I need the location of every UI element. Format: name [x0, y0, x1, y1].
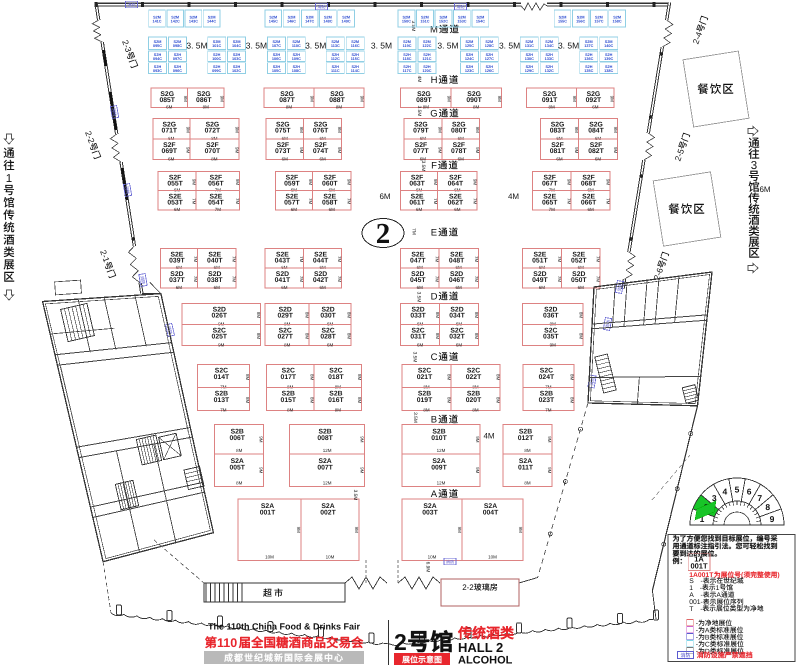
- svg-text:110C: 110C: [292, 44, 301, 48]
- svg-text:018T: 018T: [328, 374, 344, 381]
- svg-text:8M: 8M: [472, 408, 479, 413]
- svg-text:1: 1: [689, 585, 693, 592]
- svg-text:8M: 8M: [236, 481, 243, 486]
- svg-text:9M: 9M: [235, 147, 240, 154]
- svg-text:113C: 113C: [331, 44, 340, 48]
- svg-text:024T: 024T: [539, 374, 555, 381]
- svg-text:144C: 144C: [207, 19, 216, 23]
- svg-text:7M: 7M: [337, 276, 342, 283]
- svg-text:8M: 8M: [211, 157, 218, 162]
- svg-text:D: D: [431, 292, 439, 303]
- svg-text:10M: 10M: [488, 555, 497, 560]
- svg-text:121C: 121C: [422, 57, 431, 61]
- svg-text:124C: 124C: [465, 57, 474, 61]
- svg-text:086T: 086T: [196, 97, 212, 104]
- svg-text:3. 5M: 3. 5M: [371, 41, 392, 51]
- svg-text:142C: 142C: [171, 19, 180, 23]
- svg-text:6M: 6M: [417, 343, 424, 348]
- svg-text:9M: 9M: [613, 127, 618, 134]
- svg-text:7M: 7M: [411, 228, 417, 235]
- svg-text:128C: 128C: [485, 44, 494, 48]
- svg-text:070T: 070T: [205, 148, 221, 155]
- svg-text:6M: 6M: [291, 207, 298, 212]
- svg-text:140C: 140C: [604, 44, 613, 48]
- svg-text:3.5M: 3.5M: [416, 292, 422, 303]
- svg-text:3.5M: 3.5M: [420, 161, 426, 172]
- svg-text:061T: 061T: [409, 200, 425, 207]
- svg-text:034T: 034T: [449, 313, 465, 320]
- svg-text:122C: 122C: [422, 44, 431, 48]
- svg-text:7M: 7M: [596, 276, 601, 283]
- svg-text:6.9M: 6.9M: [425, 562, 431, 573]
- svg-text:8M: 8M: [496, 397, 501, 404]
- svg-text:9M: 9M: [475, 436, 480, 443]
- svg-text:016T: 016T: [328, 397, 344, 404]
- svg-text:2-2: 2-2: [462, 583, 474, 592]
- svg-text:-: -: [700, 606, 702, 613]
- svg-text:G: G: [430, 109, 438, 120]
- svg-text:-: -: [700, 585, 702, 592]
- svg-text:120C: 120C: [422, 69, 431, 73]
- svg-text:134C: 134C: [545, 44, 554, 48]
- svg-text:145C: 145C: [269, 19, 278, 23]
- svg-text:9: 9: [770, 514, 775, 524]
- svg-text:8M: 8M: [524, 481, 531, 486]
- svg-text:6M: 6M: [319, 157, 326, 162]
- svg-text:153C: 153C: [457, 19, 466, 23]
- svg-text:5: 5: [735, 485, 740, 495]
- svg-text:133C: 133C: [545, 57, 554, 61]
- svg-text:6M: 6M: [282, 157, 289, 162]
- svg-text:072T: 072T: [205, 128, 221, 135]
- svg-text:082T: 082T: [588, 148, 604, 155]
- svg-text:9M: 9M: [518, 527, 523, 534]
- svg-text:6M: 6M: [454, 207, 461, 212]
- svg-text:107C: 107C: [272, 44, 281, 48]
- svg-text:027T: 027T: [277, 334, 293, 341]
- svg-text:6M: 6M: [327, 343, 334, 348]
- svg-text:093C: 093C: [153, 69, 162, 73]
- svg-text:009T: 009T: [431, 465, 447, 472]
- svg-text:4M: 4M: [483, 432, 494, 441]
- svg-text:025T: 025T: [212, 334, 228, 341]
- svg-text:031T: 031T: [410, 334, 426, 341]
- svg-text:7M: 7M: [474, 256, 479, 263]
- svg-text:111C: 111C: [331, 69, 340, 73]
- svg-text:014T: 014T: [214, 374, 230, 381]
- svg-text:013T: 013T: [214, 397, 230, 404]
- svg-text:098C: 098C: [173, 44, 182, 48]
- svg-text:035T: 035T: [543, 334, 559, 341]
- svg-text:12M: 12M: [323, 481, 332, 486]
- svg-text:126C: 126C: [485, 69, 494, 73]
- svg-text:006T: 006T: [229, 435, 245, 442]
- svg-text:10M: 10M: [326, 555, 335, 560]
- svg-text:151C: 151C: [420, 19, 429, 23]
- svg-text:114C: 114C: [351, 69, 360, 73]
- svg-text:7M: 7M: [473, 198, 478, 205]
- svg-text:044T: 044T: [313, 258, 329, 265]
- svg-text:9M: 9M: [610, 96, 615, 103]
- svg-text:6M: 6M: [417, 285, 424, 290]
- svg-text:H: H: [431, 75, 439, 86]
- svg-text:001T: 001T: [690, 561, 708, 570]
- svg-text:8M: 8M: [474, 312, 479, 319]
- svg-text:6M: 6M: [578, 285, 585, 290]
- svg-text:138C: 138C: [604, 69, 613, 73]
- svg-text:3.5M: 3.5M: [416, 106, 422, 117]
- svg-text:8M: 8M: [496, 374, 501, 381]
- svg-text:M: M: [430, 25, 439, 36]
- svg-text:112C: 112C: [331, 57, 340, 61]
- svg-text:115C: 115C: [351, 57, 360, 61]
- svg-text:-: -: [696, 634, 698, 641]
- svg-text:141C: 141C: [152, 19, 161, 23]
- svg-text:3. 5M: 3. 5M: [558, 41, 579, 51]
- svg-text:12M: 12M: [437, 448, 446, 453]
- svg-text:B: B: [705, 634, 710, 641]
- svg-text:050T: 050T: [571, 277, 587, 284]
- svg-text:130C: 130C: [525, 57, 534, 61]
- svg-text:156C: 156C: [576, 19, 585, 23]
- svg-text:12M: 12M: [323, 448, 332, 453]
- svg-text:033T: 033T: [410, 313, 426, 320]
- svg-text:8M: 8M: [569, 374, 574, 381]
- svg-text:054T: 054T: [208, 200, 224, 207]
- svg-text:9M: 9M: [457, 527, 462, 534]
- svg-text:029T: 029T: [277, 313, 293, 320]
- svg-text:8: 8: [765, 502, 770, 512]
- svg-text:9M: 9M: [347, 179, 352, 186]
- svg-text:090T: 090T: [466, 97, 482, 104]
- svg-text:7M: 7M: [474, 276, 479, 283]
- svg-text:10M: 10M: [265, 555, 274, 560]
- svg-text:066T: 066T: [581, 200, 597, 207]
- svg-text:9M: 9M: [220, 96, 225, 103]
- svg-text:100C: 100C: [212, 57, 221, 61]
- svg-text:4M: 4M: [416, 76, 422, 83]
- svg-text:078T: 078T: [451, 148, 467, 155]
- svg-text:9M: 9M: [613, 147, 618, 154]
- svg-text:8M: 8M: [423, 408, 430, 413]
- svg-text:062T: 062T: [448, 200, 464, 207]
- svg-text:1: 1: [6, 173, 12, 185]
- svg-text:-: -: [696, 641, 698, 648]
- svg-text:074T: 074T: [313, 148, 329, 155]
- svg-text:6M: 6M: [176, 285, 183, 290]
- svg-text:030T: 030T: [320, 313, 336, 320]
- svg-text:9M: 9M: [547, 436, 552, 443]
- svg-text:106C: 106C: [272, 57, 281, 61]
- svg-text:9M: 9M: [337, 147, 342, 154]
- svg-text:6M: 6M: [168, 157, 175, 162]
- svg-text:043T: 043T: [275, 258, 291, 265]
- svg-text:017T: 017T: [281, 374, 297, 381]
- svg-text:8M: 8M: [203, 105, 210, 110]
- svg-text:10M: 10M: [428, 555, 437, 560]
- svg-text:A: A: [689, 592, 694, 599]
- svg-text:6M: 6M: [455, 285, 462, 290]
- svg-text:8M: 8M: [236, 448, 243, 453]
- svg-text:119C: 119C: [403, 44, 412, 48]
- svg-text:079T: 079T: [413, 128, 429, 135]
- svg-text:051T: 051T: [532, 258, 548, 265]
- svg-text:085T: 085T: [159, 97, 175, 104]
- svg-text:9M: 9M: [360, 96, 365, 103]
- svg-text:007T: 007T: [317, 465, 333, 472]
- svg-text:105C: 105C: [272, 69, 281, 73]
- svg-text:020T: 020T: [466, 397, 482, 404]
- svg-text:148C: 148C: [323, 19, 332, 23]
- svg-text:039T: 039T: [169, 258, 185, 265]
- svg-text:127C: 127C: [485, 57, 494, 61]
- svg-text:023T: 023T: [539, 397, 555, 404]
- svg-text:146C: 146C: [287, 19, 296, 23]
- svg-text:9M: 9M: [259, 467, 264, 474]
- svg-text:8M: 8M: [347, 333, 352, 340]
- svg-text:052T: 052T: [571, 258, 587, 265]
- svg-text:9M: 9M: [475, 467, 480, 474]
- svg-text:6: 6: [747, 487, 752, 497]
- svg-text:): ): [777, 572, 779, 579]
- svg-text:097C: 097C: [173, 57, 182, 61]
- svg-text:021T: 021T: [417, 374, 433, 381]
- svg-text:091T: 091T: [542, 97, 558, 104]
- svg-text:F: F: [431, 161, 438, 172]
- svg-text:094C: 094C: [153, 57, 162, 61]
- svg-text:6M: 6M: [456, 343, 463, 348]
- svg-text:022T: 022T: [466, 374, 482, 381]
- svg-text:028T: 028T: [320, 334, 336, 341]
- svg-text:125C: 125C: [465, 44, 474, 48]
- svg-text:041T: 041T: [275, 277, 291, 284]
- svg-text:3. 5M: 3. 5M: [186, 41, 207, 51]
- svg-text:040T: 040T: [207, 258, 223, 265]
- svg-text:8M: 8M: [256, 333, 261, 340]
- svg-text:9M: 9M: [296, 527, 301, 534]
- svg-text:8M: 8M: [256, 312, 261, 319]
- svg-text:7M: 7M: [232, 276, 237, 283]
- svg-text:095C: 095C: [153, 44, 162, 48]
- svg-text:002T: 002T: [320, 510, 336, 517]
- svg-text:065T: 065T: [542, 200, 558, 207]
- svg-text:7M: 7M: [596, 256, 601, 263]
- svg-text:154C: 154C: [476, 19, 485, 23]
- svg-text:118C: 118C: [403, 57, 412, 61]
- svg-text:7M: 7M: [235, 198, 240, 205]
- svg-text:102C: 102C: [232, 69, 241, 73]
- svg-text:011T: 011T: [518, 465, 534, 472]
- svg-text:9M: 9M: [235, 127, 240, 134]
- svg-text:6M: 6M: [166, 105, 173, 110]
- svg-text:143C: 143C: [189, 19, 198, 23]
- svg-text:9M: 9M: [337, 127, 342, 134]
- svg-text:129C: 129C: [525, 69, 534, 73]
- svg-text:087T: 087T: [279, 97, 295, 104]
- svg-text:005T: 005T: [229, 465, 245, 472]
- svg-text:004T: 004T: [483, 510, 499, 517]
- svg-text:045T: 045T: [410, 277, 426, 284]
- svg-text:6M: 6M: [595, 157, 602, 162]
- svg-text:-: -: [696, 620, 698, 627]
- svg-text:6M: 6M: [592, 105, 599, 110]
- svg-text:157C: 157C: [594, 19, 603, 23]
- svg-text:077T: 077T: [413, 148, 429, 155]
- svg-text:-: -: [701, 592, 703, 599]
- svg-text:The 110​th China Food & Drinks: The 110​th China Food & Drinks Fair: [208, 622, 361, 632]
- svg-text:9M: 9M: [235, 179, 240, 186]
- svg-text:015T: 015T: [281, 397, 297, 404]
- svg-text:099C: 099C: [212, 69, 221, 73]
- svg-text:HALL 2: HALL 2: [458, 640, 503, 655]
- svg-text:103C: 103C: [232, 57, 241, 61]
- svg-text:C: C: [431, 352, 439, 363]
- svg-text:081T: 081T: [550, 148, 566, 155]
- svg-text:8M: 8M: [474, 333, 479, 340]
- svg-text:6M: 6M: [539, 285, 546, 290]
- svg-text:3: 3: [751, 160, 757, 172]
- svg-text:089T: 089T: [416, 97, 432, 104]
- svg-text:8M: 8M: [569, 397, 574, 404]
- svg-text:7M: 7M: [549, 207, 556, 212]
- svg-text:8M: 8M: [473, 105, 480, 110]
- svg-text:8M: 8M: [357, 397, 362, 404]
- svg-text:7M: 7M: [337, 256, 342, 263]
- svg-text:4M: 4M: [508, 192, 519, 201]
- svg-text:3. 5M: 3. 5M: [499, 41, 520, 51]
- svg-text:042T: 042T: [313, 277, 329, 284]
- svg-text:3. 5M: 3. 5M: [437, 41, 458, 51]
- svg-text:092T: 092T: [586, 97, 602, 104]
- svg-text:6M: 6M: [214, 285, 221, 290]
- svg-text:3.5M: 3.5M: [412, 352, 418, 363]
- svg-text:6M: 6M: [281, 285, 288, 290]
- svg-text:8M: 8M: [245, 374, 250, 381]
- svg-text:8M: 8M: [524, 448, 531, 453]
- svg-text:A: A: [716, 592, 721, 599]
- svg-text:6M: 6M: [587, 207, 594, 212]
- svg-text:110: 110: [217, 636, 237, 650]
- svg-text:T: T: [689, 606, 693, 613]
- svg-text:116C: 116C: [351, 44, 360, 48]
- svg-text:037T: 037T: [169, 277, 185, 284]
- svg-text:8M: 8M: [357, 374, 362, 381]
- svg-text:8M: 8M: [336, 105, 343, 110]
- svg-text:088T: 088T: [329, 97, 345, 104]
- svg-text:6M: 6M: [174, 207, 181, 212]
- svg-text:046T: 046T: [449, 277, 465, 284]
- svg-text:7: 7: [757, 493, 762, 503]
- svg-text:8M: 8M: [579, 312, 584, 319]
- svg-text:3.5M: 3.5M: [412, 412, 418, 423]
- svg-text:9M: 9M: [475, 127, 480, 134]
- svg-text:9M: 9M: [360, 436, 365, 443]
- svg-text:069T: 069T: [162, 148, 178, 155]
- svg-text:B: B: [431, 415, 438, 426]
- svg-text:057T: 057T: [284, 200, 300, 207]
- svg-text:12M: 12M: [437, 481, 446, 486]
- svg-text:6M: 6M: [379, 192, 390, 201]
- svg-text:9M: 9M: [547, 467, 552, 474]
- svg-text:9M: 9M: [550, 343, 557, 348]
- svg-text:083T: 083T: [550, 128, 566, 135]
- svg-text:6M: 6M: [416, 207, 423, 212]
- svg-text:1: 1: [716, 585, 720, 592]
- svg-text:076T: 076T: [313, 128, 329, 135]
- svg-text:137C: 137C: [584, 44, 593, 48]
- svg-text:C: C: [705, 641, 710, 648]
- svg-text:131C: 131C: [525, 44, 534, 48]
- svg-text:080T: 080T: [451, 128, 467, 135]
- svg-text:049T: 049T: [532, 277, 548, 284]
- svg-text:158C: 158C: [613, 19, 622, 23]
- svg-text:058T: 058T: [322, 200, 338, 207]
- svg-text:117C: 117C: [403, 69, 412, 73]
- svg-text:136C: 136C: [584, 57, 593, 61]
- svg-text:ALCOHOL: ALCOHOL: [458, 655, 513, 666]
- svg-text:9M: 9M: [606, 179, 611, 186]
- svg-text:139C: 139C: [604, 57, 613, 61]
- svg-text:8M: 8M: [287, 408, 294, 413]
- svg-text:9M: 9M: [497, 96, 502, 103]
- svg-text:9M: 9M: [259, 436, 264, 443]
- svg-text:7M: 7M: [220, 408, 227, 413]
- svg-text:101C: 101C: [212, 44, 221, 48]
- svg-text:3.5M: 3.5M: [352, 490, 358, 501]
- svg-text:149C: 149C: [342, 19, 351, 23]
- svg-text:3. 5M: 3. 5M: [305, 41, 326, 51]
- svg-text:9M: 9M: [360, 467, 365, 474]
- svg-text:147C: 147C: [305, 19, 314, 23]
- svg-text:012T: 012T: [518, 435, 534, 442]
- svg-text:9M: 9M: [354, 527, 359, 534]
- svg-text:073T: 073T: [275, 148, 291, 155]
- svg-text:053T: 053T: [167, 200, 183, 207]
- svg-text:038T: 038T: [207, 277, 223, 284]
- svg-text:E: E: [431, 228, 438, 239]
- svg-text:032T: 032T: [449, 334, 465, 341]
- svg-text:8M: 8M: [548, 105, 555, 110]
- svg-text:9M: 9M: [473, 179, 478, 186]
- svg-text:001T: 001T: [260, 510, 276, 517]
- svg-text:155C: 155C: [558, 19, 567, 23]
- svg-text:6M: 6M: [319, 285, 326, 290]
- svg-text:A: A: [431, 489, 438, 500]
- svg-text:075T: 075T: [275, 128, 291, 135]
- svg-text:8M: 8M: [286, 105, 293, 110]
- svg-text:-: -: [696, 627, 698, 634]
- svg-text:047T: 047T: [410, 258, 426, 265]
- svg-text:3. 5M: 3. 5M: [246, 41, 267, 51]
- svg-text:7M: 7M: [347, 198, 352, 205]
- svg-text:132C: 132C: [545, 69, 554, 73]
- svg-text:123C: 123C: [465, 69, 474, 73]
- svg-text:108C: 108C: [292, 69, 301, 73]
- svg-text:6M: 6M: [458, 157, 465, 162]
- svg-text:019T: 019T: [417, 397, 433, 404]
- svg-text:8M: 8M: [284, 343, 291, 348]
- svg-text:4: 4: [723, 487, 728, 497]
- svg-text:6M: 6M: [556, 157, 563, 162]
- svg-text:036T: 036T: [543, 313, 559, 320]
- svg-text:8M: 8M: [245, 397, 250, 404]
- svg-text:8M: 8M: [579, 333, 584, 340]
- svg-text:071T: 071T: [162, 128, 178, 135]
- svg-text:7M: 7M: [606, 198, 611, 205]
- svg-text:2: 2: [376, 218, 391, 250]
- svg-text:8M: 8M: [423, 105, 430, 110]
- svg-text:9M: 9M: [218, 343, 225, 348]
